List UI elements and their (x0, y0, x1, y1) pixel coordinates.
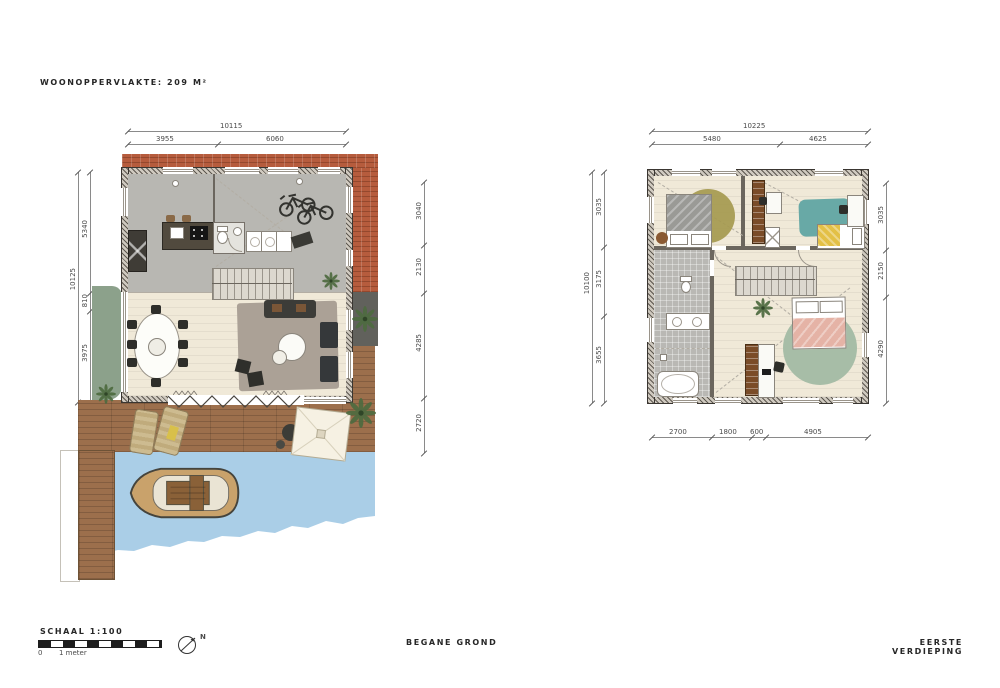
dimension-label: 5480 (702, 136, 722, 143)
dimension-label: 4290 (877, 340, 886, 358)
sink-counter (666, 313, 710, 330)
dimension-line (652, 144, 868, 145)
dimension-line (652, 437, 868, 438)
pouf (656, 232, 668, 244)
dimension-line (592, 172, 593, 403)
staircase (735, 266, 817, 296)
north-arrow-icon (176, 633, 200, 657)
window (647, 318, 654, 342)
first-floor-plan: 10225 5480 4625 10100 3035 3175 3655 303… (0, 0, 1000, 688)
stair-rail (735, 279, 815, 280)
desk (758, 344, 775, 398)
scale-tick-one: 1 meter (58, 650, 88, 657)
floor-plan-sheet: WOONOPPERVLAKTE: 209 M² 10115 3955 6060 … (0, 0, 1000, 688)
double-bed (792, 297, 847, 350)
scale-tick-zero: 0 (37, 650, 43, 657)
desk (766, 192, 782, 214)
dimension-label: 3175 (595, 270, 604, 288)
dimension-label: 2150 (877, 262, 886, 280)
scale-label: SCHAAL 1:100 (40, 627, 123, 636)
first-floor-caption: EERSTE VERDIEPING (848, 638, 963, 656)
dimension-label: 2700 (668, 429, 688, 436)
dimension-line (652, 131, 868, 132)
dimension-label: 3035 (877, 206, 886, 224)
desk-chair (759, 197, 767, 205)
wardrobe (745, 344, 759, 396)
window (715, 398, 741, 405)
window (672, 169, 700, 176)
window (783, 398, 819, 405)
toilet-bowl (681, 281, 691, 293)
dimension-label: 10225 (742, 123, 766, 130)
ground-floor-caption: BEGANE GROND (406, 638, 497, 647)
single-bed (817, 224, 865, 249)
desk-chair (839, 205, 848, 214)
shower-screen (656, 348, 710, 349)
pillow (796, 301, 819, 313)
wardrobe (752, 180, 765, 244)
bathtub (657, 371, 699, 397)
north-label: N (199, 634, 207, 641)
pillow (670, 234, 688, 245)
scale-bar (38, 640, 162, 648)
pillow (852, 228, 862, 245)
window (862, 333, 869, 357)
dimension-line (886, 183, 887, 403)
pillow (691, 234, 709, 245)
window (815, 169, 843, 176)
dimension-label: 4905 (803, 429, 823, 436)
pillow (820, 301, 843, 313)
cabinet (765, 227, 780, 248)
laptop (762, 369, 771, 375)
dimension-label: 1800 (718, 429, 738, 436)
dimension-label: 600 (749, 429, 764, 436)
dimension-label: 4625 (808, 136, 828, 143)
shower-drain (660, 354, 667, 361)
dimension-label: 10100 (583, 272, 592, 294)
door-opening (710, 260, 714, 276)
dimension-label: 3655 (595, 346, 604, 364)
window (673, 398, 697, 405)
desk-chair (773, 361, 785, 373)
bed (666, 194, 712, 248)
desk (847, 195, 864, 227)
dimension-line (604, 172, 605, 403)
window (647, 197, 654, 223)
dimension-label: 3035 (595, 198, 604, 216)
plant-icon (753, 298, 773, 318)
window (712, 169, 736, 176)
window (833, 398, 853, 405)
